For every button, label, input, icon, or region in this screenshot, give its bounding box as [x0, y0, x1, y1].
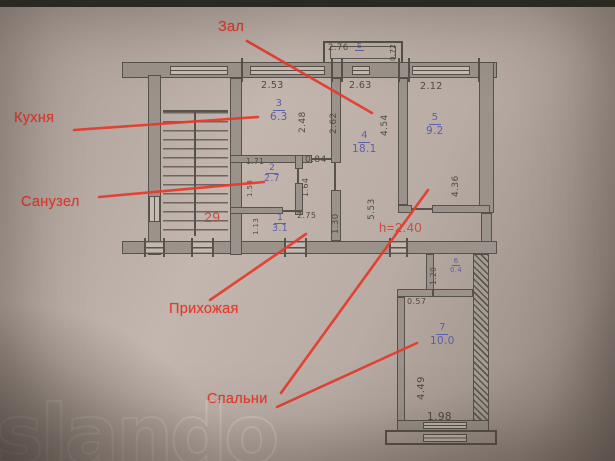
- door-apartment-entrance: [285, 243, 305, 252]
- label-ceiling-height: h=2.40: [379, 220, 422, 235]
- dimension-tick: [331, 58, 333, 82]
- door-jamb-tick: [284, 238, 286, 257]
- dim-bedroom7-notch: 0.57: [407, 297, 426, 306]
- photo-dark-edge: [0, 0, 615, 7]
- dim-bath-width: 1.71: [246, 157, 264, 166]
- wall-bedroom7-top: [397, 289, 433, 297]
- dim-corridor-offset: 0.84: [305, 155, 327, 165]
- label-prihozhaya: Прихожая: [169, 301, 239, 317]
- dim-bath-left: 1.58: [246, 175, 254, 197]
- dim-livingroom-right: 4.54: [380, 102, 390, 136]
- dim-livingroom-left: 2.62: [329, 102, 339, 134]
- wall-bottom-corridor: [122, 241, 497, 254]
- wall-closet-bottom: [433, 289, 473, 297]
- room-6-area: 0.4: [450, 266, 462, 274]
- room-7-number: 7: [436, 322, 448, 335]
- dim-bedroom7-depth: 4.49: [416, 366, 427, 400]
- room-3-number: 3: [273, 98, 285, 111]
- room-7-label: 7 10.0: [430, 322, 455, 347]
- label-apartment-number: 29: [204, 209, 221, 225]
- label-kuhnya: Кухня: [14, 110, 54, 126]
- bedroom5-door-line: [412, 208, 432, 210]
- dim-livingroom-length: 5.53: [367, 186, 377, 220]
- door-jamb-tick: [389, 238, 391, 257]
- balcony-bottom-rail: [423, 434, 467, 442]
- dim-closet-height: 1.20: [429, 261, 438, 285]
- window-left-wall: [149, 196, 160, 222]
- room-4-area: 18.1: [352, 143, 377, 155]
- staircase-divider: [194, 112, 196, 236]
- room-1-area: 3.1: [272, 224, 288, 235]
- floorplan-photo: 2.76 0.72 Б 2.53 2.63 2.12 2.48 2.62 4.5…: [0, 0, 615, 461]
- door-building-entrance: [192, 243, 212, 252]
- balcony-door: [352, 66, 370, 75]
- dimension-tick: [341, 58, 343, 82]
- door-jamb-tick: [406, 238, 408, 257]
- room-4-number: 4: [358, 130, 370, 143]
- door-jamb-tick: [212, 238, 214, 257]
- door-bedroom-wing: [390, 243, 406, 252]
- dim-bedroom7-width: 1.98: [427, 411, 452, 423]
- wall-livingroom-bedroom5: [398, 78, 408, 205]
- wall-bedroom5-bottom-a: [398, 205, 412, 213]
- dim-kitchen-width: 2.53: [261, 80, 284, 91]
- window-bedroom7: [423, 422, 467, 429]
- room-3-area: 6.3: [270, 111, 288, 123]
- wall-bedroom7-right-hatched: [473, 254, 489, 432]
- room-5-area: 9.2: [426, 125, 444, 137]
- label-zal: Зал: [218, 19, 244, 35]
- wall-right-exterior: [479, 62, 494, 213]
- dim-hall-passage: 1.30: [331, 206, 341, 234]
- balcony-mark: Б: [355, 42, 364, 51]
- room-2-area: 2.7: [264, 174, 280, 185]
- door-jamb-tick: [144, 238, 146, 257]
- balcony-mark-letter: Б: [355, 42, 364, 51]
- dim-bedroom5-width: 2.12: [420, 81, 443, 92]
- dimension-tick: [408, 58, 410, 82]
- wall-left-exterior: [148, 75, 161, 255]
- window-bedroom5: [412, 66, 470, 75]
- door-stairwell-entrance: [145, 243, 163, 252]
- room-3-label: 3 6.3: [270, 98, 288, 123]
- dim-kitchen-depth: 2.48: [298, 101, 308, 133]
- room-5-label: 5 9.2: [426, 112, 444, 137]
- dim-livingroom-width: 2.63: [349, 80, 372, 91]
- label-sanuzel: Санузел: [21, 194, 80, 210]
- room-6-label: 6 0.4: [450, 257, 462, 274]
- bath-door-line: [297, 169, 299, 183]
- dimension-tick: [398, 58, 400, 82]
- window-kitchen: [250, 66, 325, 75]
- watermark-slando: slando: [0, 388, 276, 461]
- door-jamb-tick: [163, 238, 165, 257]
- room-4-label: 4 18.1: [352, 130, 377, 155]
- dim-bedroom5-depth: 4.36: [451, 163, 461, 197]
- room-6-number: 6: [452, 257, 460, 266]
- room-2-label: 2 2.7: [264, 163, 280, 185]
- wall-bedroom5-bottom-b: [432, 205, 490, 213]
- dim-balcony-width: 2.76: [328, 43, 349, 53]
- room-1-label: 1 3.1: [272, 213, 288, 235]
- door-jamb-tick: [305, 238, 307, 257]
- dimension-tick: [241, 58, 243, 82]
- window-stairwell: [170, 66, 228, 75]
- wall-bedroom7-left: [397, 297, 405, 432]
- room-5-number: 5: [429, 112, 441, 125]
- door-jamb-tick: [191, 238, 193, 257]
- dimension-tick: [478, 58, 480, 82]
- staircase-landing-line: [163, 110, 228, 112]
- dim-hallway-width: 2.75: [297, 211, 316, 220]
- wall-stairwell-right: [230, 78, 242, 255]
- dim-balcony-depth: 0.72: [389, 43, 397, 61]
- dim-bath-right: 1.64: [301, 173, 310, 197]
- room-7-area: 10.0: [430, 335, 455, 347]
- livingroom-door-line: [334, 163, 336, 190]
- wall-bath-right-a: [295, 155, 303, 169]
- dim-hallway-left: 1.13: [252, 213, 260, 235]
